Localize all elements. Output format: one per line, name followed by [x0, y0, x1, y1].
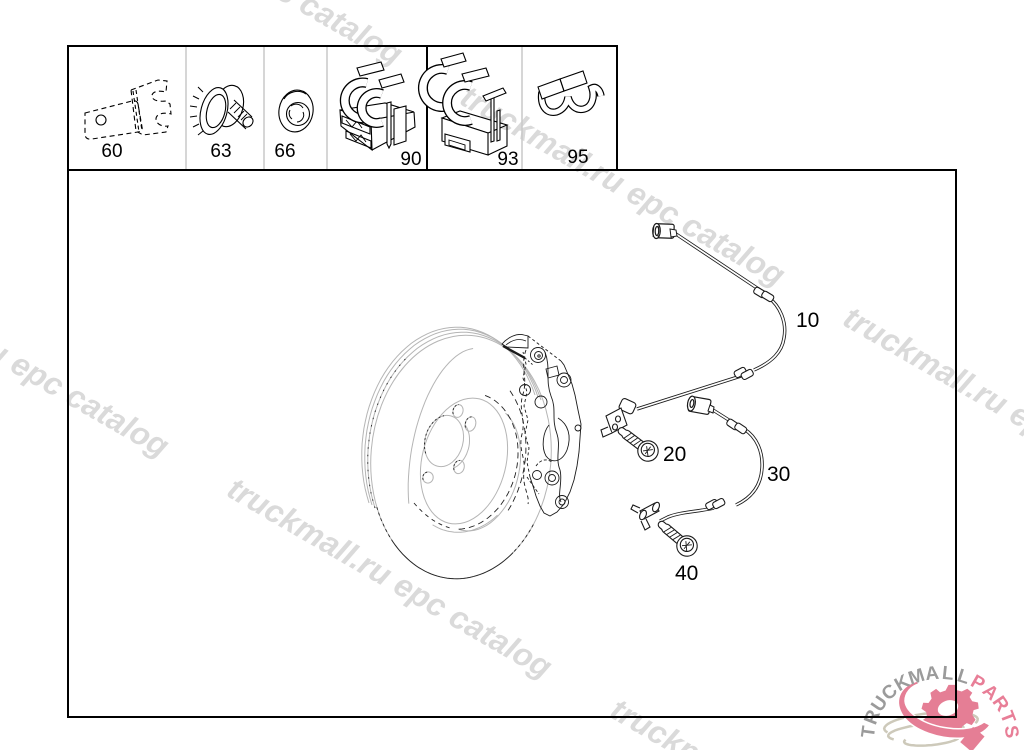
- svg-text:60: 60: [101, 141, 122, 162]
- svg-text:95: 95: [567, 147, 588, 168]
- svg-text:66: 66: [274, 141, 295, 162]
- svg-text:10: 10: [796, 309, 819, 332]
- svg-text:63: 63: [210, 141, 231, 162]
- svg-text:90: 90: [400, 149, 421, 170]
- svg-text:20: 20: [663, 443, 686, 466]
- svg-text:A: A: [924, 663, 940, 685]
- svg-text:40: 40: [675, 562, 698, 585]
- svg-text:93: 93: [497, 149, 518, 170]
- svg-text:30: 30: [767, 463, 790, 486]
